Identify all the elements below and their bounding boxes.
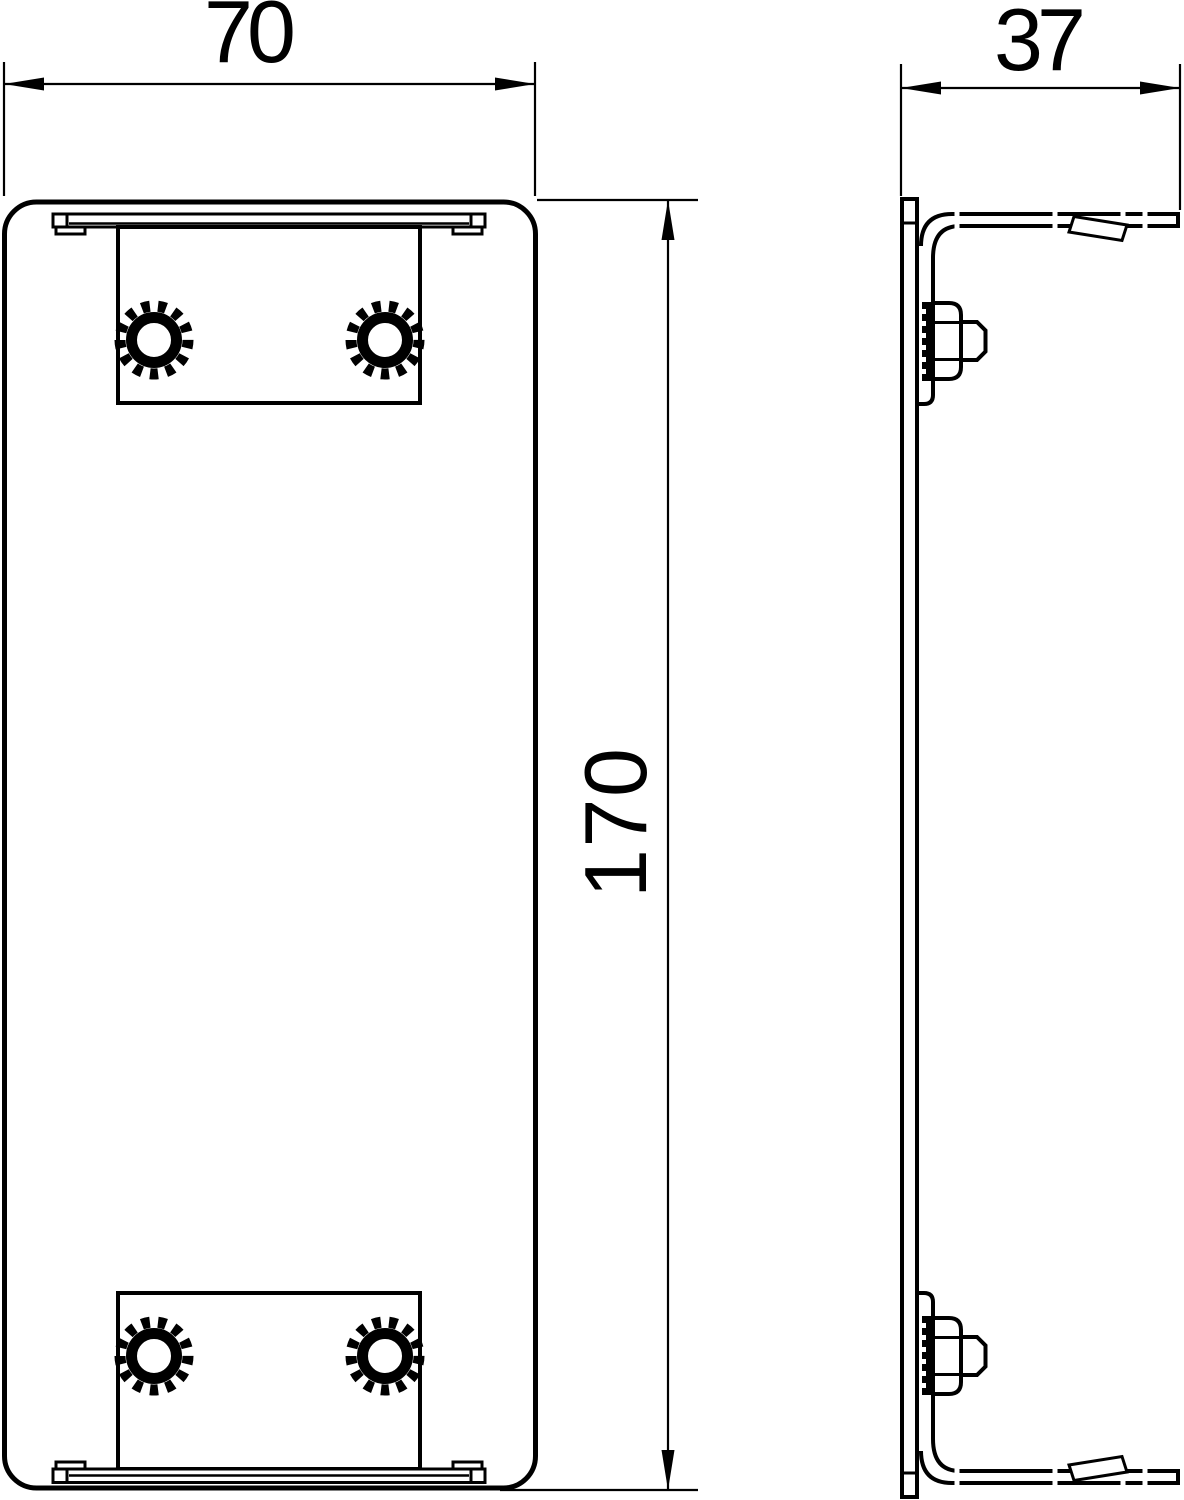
- top-rail-hook-right: [453, 227, 482, 234]
- flange-gap: [1143, 1468, 1148, 1487]
- side-view: [902, 199, 1178, 1497]
- side-face-plate: [902, 199, 917, 1497]
- flange-gap: [1143, 210, 1148, 229]
- dimension-front-width: 70: [4, 0, 535, 196]
- technical-drawing: 70 37 170: [0, 0, 1184, 1500]
- dimension-side-depth: 37: [901, 0, 1180, 210]
- bottom-flange-outer-line: [921, 1451, 1178, 1483]
- hex-nut-profile: [933, 1318, 961, 1394]
- front-view: [5, 202, 536, 1488]
- drawing-canvas: 70 37 170: [0, 0, 1184, 1500]
- bolt-assembly-top: [920, 302, 986, 381]
- arrowhead-up-icon: [662, 200, 675, 240]
- latch-clip-top: [1069, 217, 1127, 241]
- dim-label-side-depth: 37: [994, 0, 1086, 89]
- arrowhead-left-icon: [4, 78, 44, 91]
- hex-nut-profile: [933, 303, 961, 379]
- flange-gap: [955, 1468, 960, 1487]
- bolt-assembly-bottom: [920, 1316, 986, 1395]
- bolt-shank-end: [961, 322, 986, 360]
- bottom-rail-hook-right: [453, 1462, 482, 1469]
- flange-gap: [1053, 210, 1058, 229]
- dim-label-front-height: 170: [566, 748, 665, 898]
- arrowhead-down-icon: [662, 1450, 675, 1490]
- top-rail-hook-left: [56, 227, 85, 234]
- flange-gap: [1053, 1468, 1058, 1487]
- flange-gap: [955, 210, 960, 229]
- bottom-rail-hook-left: [56, 1462, 85, 1469]
- arrowhead-right-icon: [495, 78, 535, 91]
- top-flange-outer-line: [921, 214, 1178, 246]
- arrowhead-right-icon: [1140, 82, 1180, 95]
- dim-label-front-width: 70: [204, 0, 296, 81]
- arrowhead-left-icon: [901, 82, 941, 95]
- bolt-shank-end: [961, 1337, 986, 1375]
- latch-clip-bottom: [1069, 1457, 1127, 1481]
